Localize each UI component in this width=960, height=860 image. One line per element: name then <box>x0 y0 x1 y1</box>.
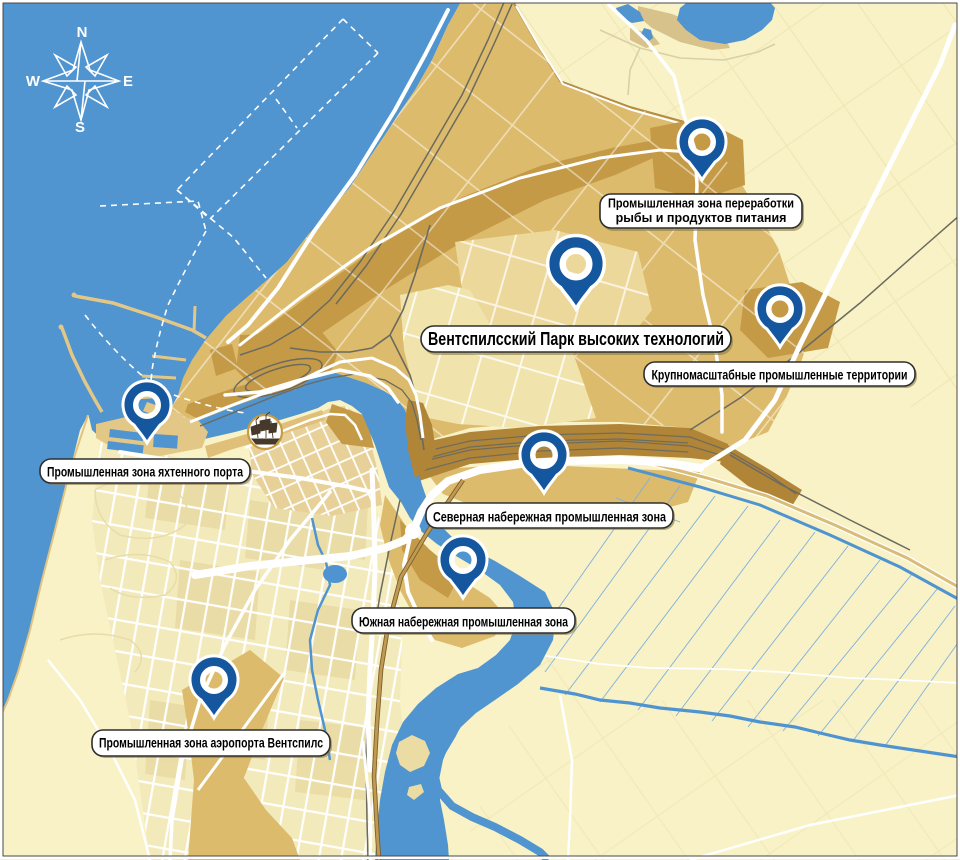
svg-text:рыбы и продуктов питания: рыбы и продуктов питания <box>616 211 787 225</box>
svg-text:Промышленная зона переработки: Промышленная зона переработки <box>608 197 794 211</box>
svg-text:Промышленная зона аэропорта Ве: Промышленная зона аэропорта Вентспилс <box>99 735 323 751</box>
svg-text:E: E <box>123 73 133 90</box>
svg-text:W: W <box>26 73 41 90</box>
svg-text:Вентспилсский Парк высоких тех: Вентспилсский Парк высоких технологий <box>428 329 724 349</box>
svg-text:Крупномасштабные промышленные: Крупномасштабные промышленные территории <box>652 367 908 383</box>
svg-text:Северная набережная промышленн: Северная набережная промышленная зона <box>433 509 666 525</box>
svg-text:N: N <box>77 24 88 41</box>
svg-text:S: S <box>75 119 85 136</box>
svg-text:Южная набережная промышленная: Южная набережная промышленная зона <box>359 614 568 630</box>
svg-text:Промышленная зона яхтенного по: Промышленная зона яхтенного порта <box>47 464 243 480</box>
